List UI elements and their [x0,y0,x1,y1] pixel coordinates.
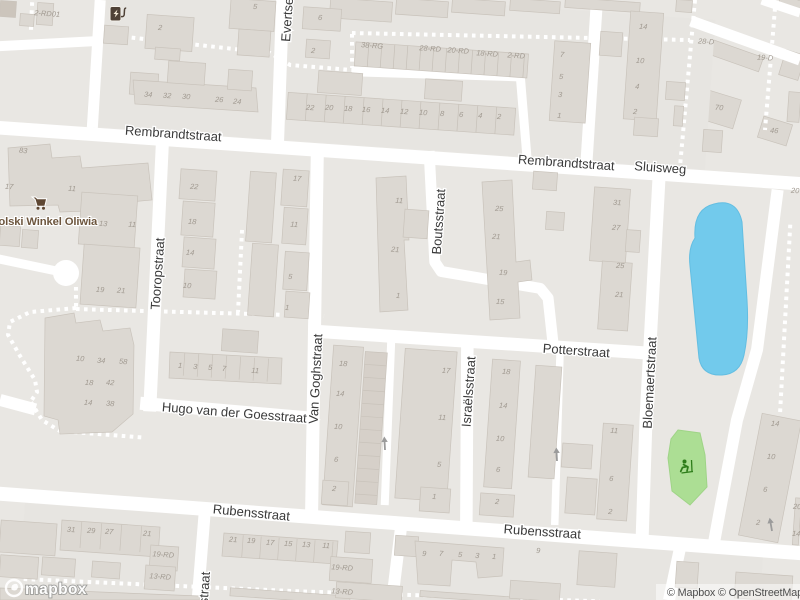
svg-text:14: 14 [336,389,345,399]
svg-text:11: 11 [610,426,618,436]
svg-text:38-RG: 38-RG [361,40,384,51]
svg-text:14: 14 [639,22,648,32]
svg-text:10: 10 [76,354,86,364]
svg-text:16: 16 [362,105,372,115]
svg-text:10: 10 [767,452,777,462]
svg-text:58: 58 [119,357,129,367]
svg-text:4: 4 [635,82,640,91]
svg-text:11: 11 [68,184,76,194]
svg-text:18: 18 [344,104,354,114]
svg-text:34: 34 [144,90,153,100]
svg-text:18-RD: 18-RD [476,48,499,59]
svg-text:1: 1 [396,291,401,300]
svg-text:27: 27 [611,223,622,233]
svg-text:14: 14 [792,529,800,539]
svg-text:21: 21 [491,232,501,242]
svg-text:15: 15 [284,539,294,549]
svg-text:32: 32 [163,91,173,101]
svg-text:21: 21 [390,245,400,255]
svg-text:13: 13 [302,540,312,550]
svg-text:1: 1 [432,492,437,501]
svg-text:11: 11 [290,220,298,230]
svg-text:14: 14 [381,106,390,116]
svg-text:2-RD01: 2-RD01 [33,8,60,19]
svg-text:10: 10 [334,422,344,432]
svg-text:19-RD: 19-RD [331,562,354,573]
svg-text:18: 18 [339,359,349,369]
svg-text:26: 26 [214,95,225,105]
svg-text:31: 31 [67,525,76,535]
svg-text:21: 21 [228,535,238,545]
svg-text:28-RD: 28-RD [418,43,442,54]
svg-text:18: 18 [188,217,198,227]
svg-text:11: 11 [395,196,403,206]
svg-text:14: 14 [84,398,93,408]
svg-text:1: 1 [492,552,497,561]
svg-text:Polski Winkel Oliwia: Polski Winkel Oliwia [0,216,98,228]
svg-text:20: 20 [792,502,800,512]
svg-text:17: 17 [5,182,15,192]
svg-text:15: 15 [496,297,506,307]
svg-text:19: 19 [247,536,257,546]
svg-text:38: 38 [106,399,116,409]
svg-text:42: 42 [106,378,116,388]
svg-text:18: 18 [502,367,512,377]
svg-text:17: 17 [266,538,276,548]
svg-text:11: 11 [128,220,136,230]
svg-text:30: 30 [182,92,192,102]
svg-text:13: 13 [99,219,109,229]
svg-text:24: 24 [232,97,242,107]
svg-text:10: 10 [419,108,429,118]
svg-text:1: 1 [557,111,562,120]
svg-text:25: 25 [494,204,505,214]
svg-text:34: 34 [97,356,106,366]
svg-text:19: 19 [499,268,509,278]
svg-text:20-RD: 20-RD [446,45,470,56]
svg-text:19-D: 19-D [757,52,774,62]
svg-text:29: 29 [86,526,97,536]
svg-text:17: 17 [442,366,452,376]
svg-text:17: 17 [293,174,303,184]
svg-text:14: 14 [771,419,780,429]
svg-text:27: 27 [104,527,115,537]
svg-text:25: 25 [615,261,626,271]
svg-text:18: 18 [85,378,95,388]
svg-text:19-RD: 19-RD [152,549,175,560]
svg-text:14: 14 [499,401,508,411]
svg-text:46: 46 [770,126,780,136]
svg-text:2-RD: 2-RD [506,50,526,60]
svg-text:© Mapbox © OpenStreetMap: © Mapbox © OpenStreetMap [667,587,800,599]
svg-text:14: 14 [186,248,195,258]
svg-text:21: 21 [614,290,624,300]
svg-text:13-RD: 13-RD [331,586,354,597]
svg-text:10: 10 [496,434,506,444]
svg-text:11: 11 [322,541,330,551]
svg-text:31: 31 [613,198,622,208]
svg-text:11: 11 [438,413,446,423]
svg-text:20: 20 [324,103,335,113]
svg-text:21: 21 [142,529,152,539]
svg-text:83: 83 [19,146,29,156]
svg-text:20: 20 [790,186,800,196]
svg-text:70: 70 [715,103,725,113]
svg-text:1: 1 [178,361,183,370]
svg-text:1: 1 [285,303,290,312]
svg-text:28-D: 28-D [697,36,715,46]
svg-text:4: 4 [478,111,483,120]
svg-text:22: 22 [305,103,316,113]
svg-text:11: 11 [251,366,259,376]
svg-text:10: 10 [636,56,646,66]
svg-text:13-RD: 13-RD [149,571,172,582]
svg-text:10: 10 [183,281,193,291]
svg-text:19: 19 [96,285,106,295]
svg-text:12: 12 [400,107,410,117]
svg-text:21: 21 [116,286,126,296]
svg-text:mapbox: mapbox [25,581,87,598]
svg-text:22: 22 [189,182,200,192]
